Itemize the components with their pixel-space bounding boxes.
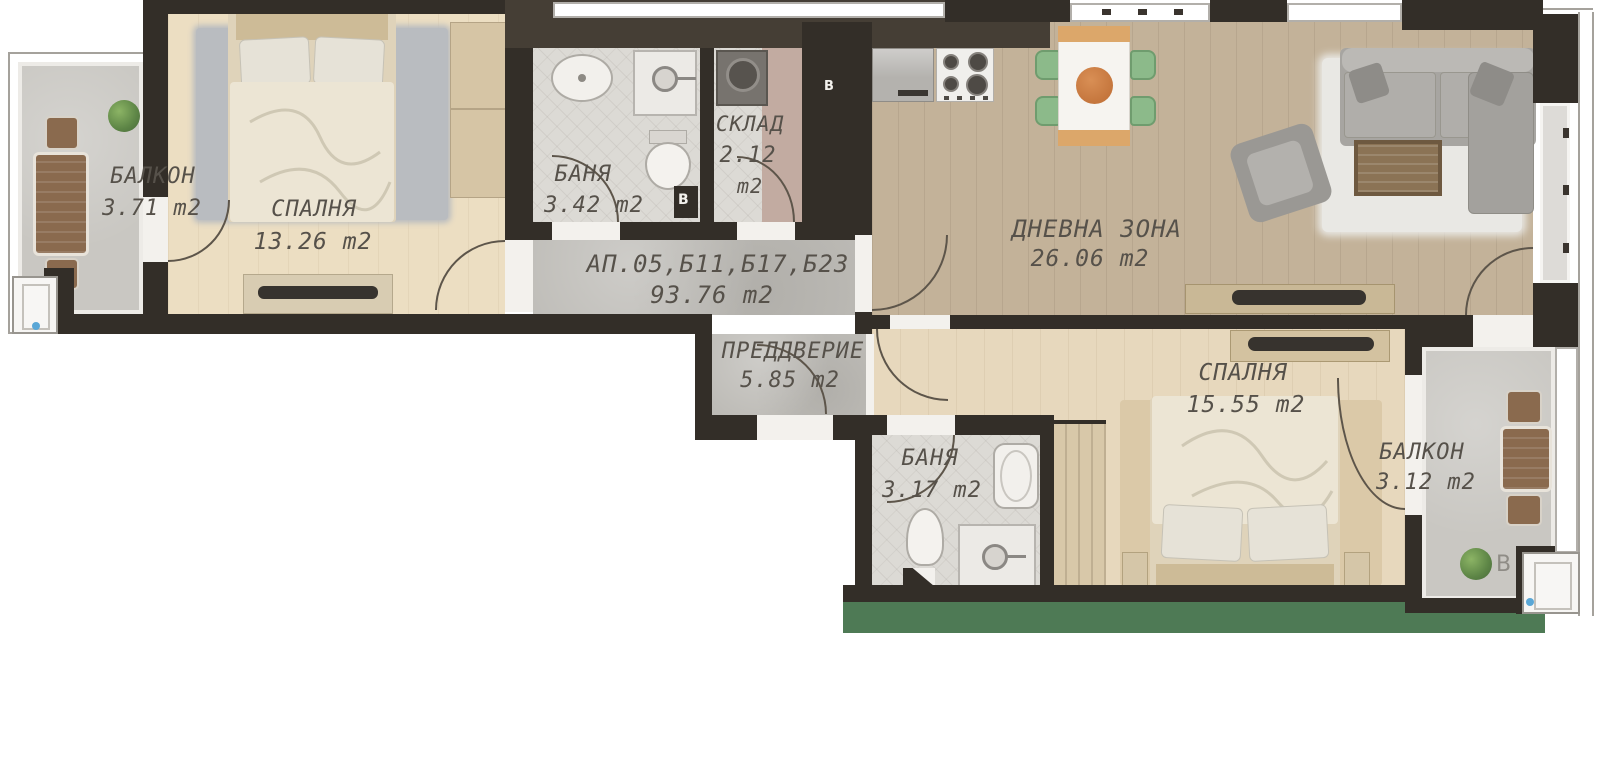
stove-burner-2: [968, 52, 988, 72]
balcony-left-table: [33, 152, 89, 256]
stove-burner-4: [966, 74, 988, 96]
window-mullion: [1102, 9, 1111, 15]
dining-chair-br: [1130, 96, 1156, 126]
wall: [855, 420, 872, 585]
bedroom1-wardrobe: [450, 22, 506, 198]
entrance-door: [757, 415, 833, 440]
wall: [802, 22, 872, 240]
wall: [855, 315, 890, 329]
label-bedroom2-area: 15.55 m2: [1187, 392, 1306, 418]
dining-table-edge-bottom: [1058, 130, 1130, 146]
label-hall-area: 93.76 m2: [650, 281, 774, 309]
label-bath1-area: 3.42 m2: [544, 193, 644, 218]
wall: [1405, 515, 1422, 600]
door-opening-bath1: [552, 222, 620, 240]
window-box-bottom-right: [1522, 552, 1580, 614]
wall: [1402, 0, 1543, 30]
wall: [1533, 14, 1578, 103]
bedroom1-wardrobe-divider: [450, 108, 506, 110]
shaft-letter-bath1: В: [678, 192, 689, 208]
label-hall-name: АП.05,Б11,Б17,Б23: [587, 250, 850, 278]
balcony-right-chair-bottom: [1506, 494, 1542, 526]
wall: [855, 415, 887, 435]
window-glint: [1526, 598, 1534, 606]
wall: [1210, 0, 1287, 22]
wall: [695, 415, 757, 440]
bath1-shower-head: [652, 66, 678, 92]
balcony-right-chair-top: [1506, 390, 1542, 424]
wall: [950, 315, 1405, 329]
bedroom2-tv: [1248, 337, 1374, 351]
bath2-tub-inner: [1000, 450, 1032, 502]
label-bedroom1-area: 13.26 m2: [254, 229, 373, 255]
wall: [44, 314, 712, 334]
label-balcony-left-area: 3.71 m2: [102, 196, 202, 221]
label-bath2-area: 3.17 m2: [882, 478, 982, 503]
label-balcony-right-area: 3.12 m2: [1376, 470, 1476, 495]
label-living-area: 26.06 m2: [1031, 246, 1150, 272]
label-vestibule-name: ПРЕДДВЕРИЕ: [722, 339, 864, 364]
bedroom1-tv: [258, 286, 378, 299]
door-opening-bedroom1: [505, 240, 533, 312]
wall: [1040, 415, 1054, 587]
door-opening-bath2: [887, 415, 955, 435]
balcony-left-chair-top: [45, 116, 79, 150]
dining-chair-tr: [1130, 50, 1156, 80]
bath1-sink-drain: [578, 74, 586, 82]
label-bath2-name: БАНЯ: [902, 446, 959, 471]
vestibule-corridor-threshold: [866, 334, 874, 415]
window-mullion: [1174, 9, 1183, 15]
balcony-left-plant: [108, 100, 140, 132]
window-top-living-2: [1287, 3, 1402, 22]
door-opening-living: [855, 235, 872, 312]
label-vestibule-area: 5.85 m2: [740, 368, 840, 393]
coffee-table: [1354, 140, 1442, 196]
label-bath1-name: БАНЯ: [555, 162, 612, 187]
storage-washer-drum: [726, 58, 760, 92]
wall: [505, 222, 552, 240]
bedroom2-closet: [1052, 420, 1106, 596]
label-balcony-right-name: БАЛКОН: [1379, 440, 1464, 465]
living-tv: [1232, 290, 1366, 305]
floor-plan: В В В БАЛКОН 3.71 m2 СПАЛНЯ 13.26 m2 БАН…: [0, 0, 1600, 766]
window-box-bottom-left: [12, 276, 58, 334]
wall: [945, 0, 1070, 22]
stove-burner-1: [943, 54, 959, 70]
stove-burner-3: [943, 76, 959, 92]
wall: [143, 0, 505, 14]
label-storage-area: 2.12: [720, 143, 777, 168]
wall: [955, 415, 1040, 435]
wall: [700, 48, 714, 222]
label-storage-name: СКЛАД: [716, 112, 784, 136]
dining-table-edge-top: [1058, 26, 1130, 42]
wall: [1405, 598, 1525, 613]
bath2-shower-arm: [1006, 555, 1026, 558]
stove-knobs: [944, 96, 988, 100]
label-storage-unit: m2: [737, 174, 763, 198]
wall: [505, 48, 533, 240]
window-mullion: [1138, 9, 1147, 15]
label-bedroom2-name: СПАЛНЯ: [1198, 360, 1287, 386]
label-living-name: ДНЕВНА ЗОНА: [1012, 215, 1182, 243]
balcony2-right-window: [1555, 347, 1578, 553]
door-opening-storage: [737, 222, 795, 240]
door-opening-corridor: [890, 315, 950, 329]
dining-centerpiece: [1076, 67, 1113, 104]
window-top-left: [553, 2, 945, 18]
door-opening-balcony2-living: [1473, 315, 1533, 347]
bedroom1-pillow-right: [313, 36, 385, 88]
wall: [1533, 283, 1578, 347]
balcony-right-table: [1500, 426, 1552, 492]
window-mullion: [1563, 243, 1569, 253]
bath2-toilet: [906, 508, 944, 566]
bedroom1-pillow-left: [239, 36, 311, 88]
window-glint: [32, 322, 40, 330]
wall: [620, 222, 737, 240]
kitchen-cabinet-handle: [898, 90, 928, 96]
label-balcony-left-name: БАЛКОН: [110, 164, 195, 189]
window-mullion: [1563, 185, 1569, 195]
bath1-shower-arm: [676, 77, 696, 80]
bedroom2-pillow-left: [1161, 504, 1244, 562]
bedroom1-headboard: [236, 12, 388, 40]
wall: [1405, 315, 1473, 347]
balcony-right-plant: [1460, 548, 1492, 580]
shaft-letter-balcony: В: [1496, 552, 1511, 577]
label-bedroom1-name: СПАЛНЯ: [271, 197, 356, 222]
wall: [843, 585, 1405, 602]
balcony-right-railing: [1578, 12, 1594, 616]
wall: [795, 222, 855, 240]
shaft-letter-panel: В: [824, 79, 834, 94]
bath2-shower-head: [982, 544, 1008, 570]
bedroom2-pillow-right: [1247, 504, 1330, 562]
window-mullion: [1563, 128, 1569, 138]
